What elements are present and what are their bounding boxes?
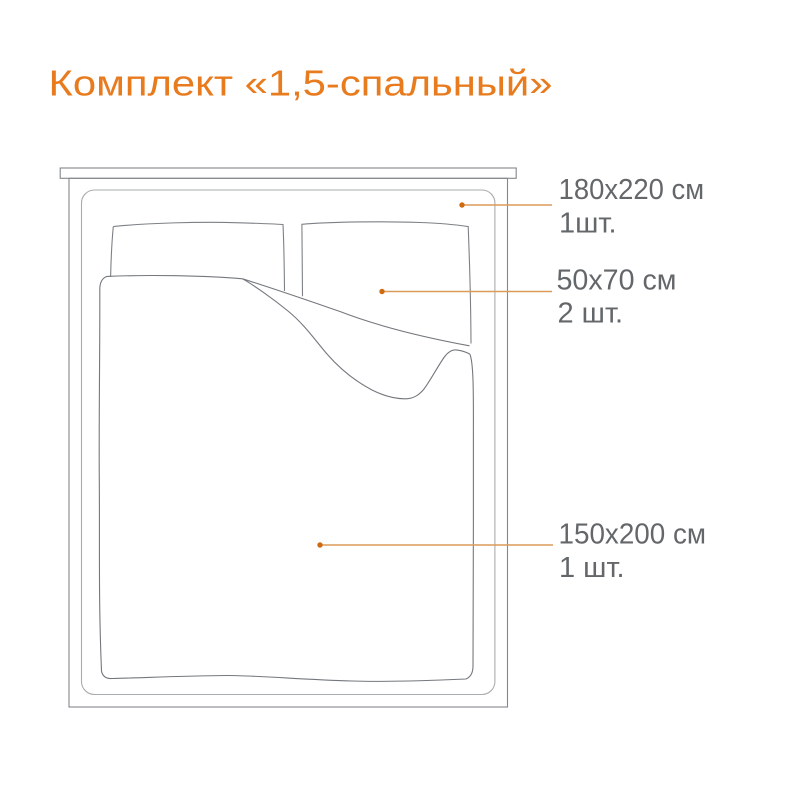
svg-text:Комплект «1,5-спальный»: Комплект «1,5-спальный» xyxy=(49,63,553,104)
svg-text:1шт.: 1шт. xyxy=(559,207,617,239)
svg-text:180x220 см: 180x220 см xyxy=(559,174,705,206)
svg-text:2 шт.: 2 шт. xyxy=(558,297,624,329)
svg-text:150x200 см: 150x200 см xyxy=(559,518,707,550)
svg-text:1 шт.: 1 шт. xyxy=(559,552,625,584)
svg-text:50x70 см: 50x70 см xyxy=(557,264,677,296)
